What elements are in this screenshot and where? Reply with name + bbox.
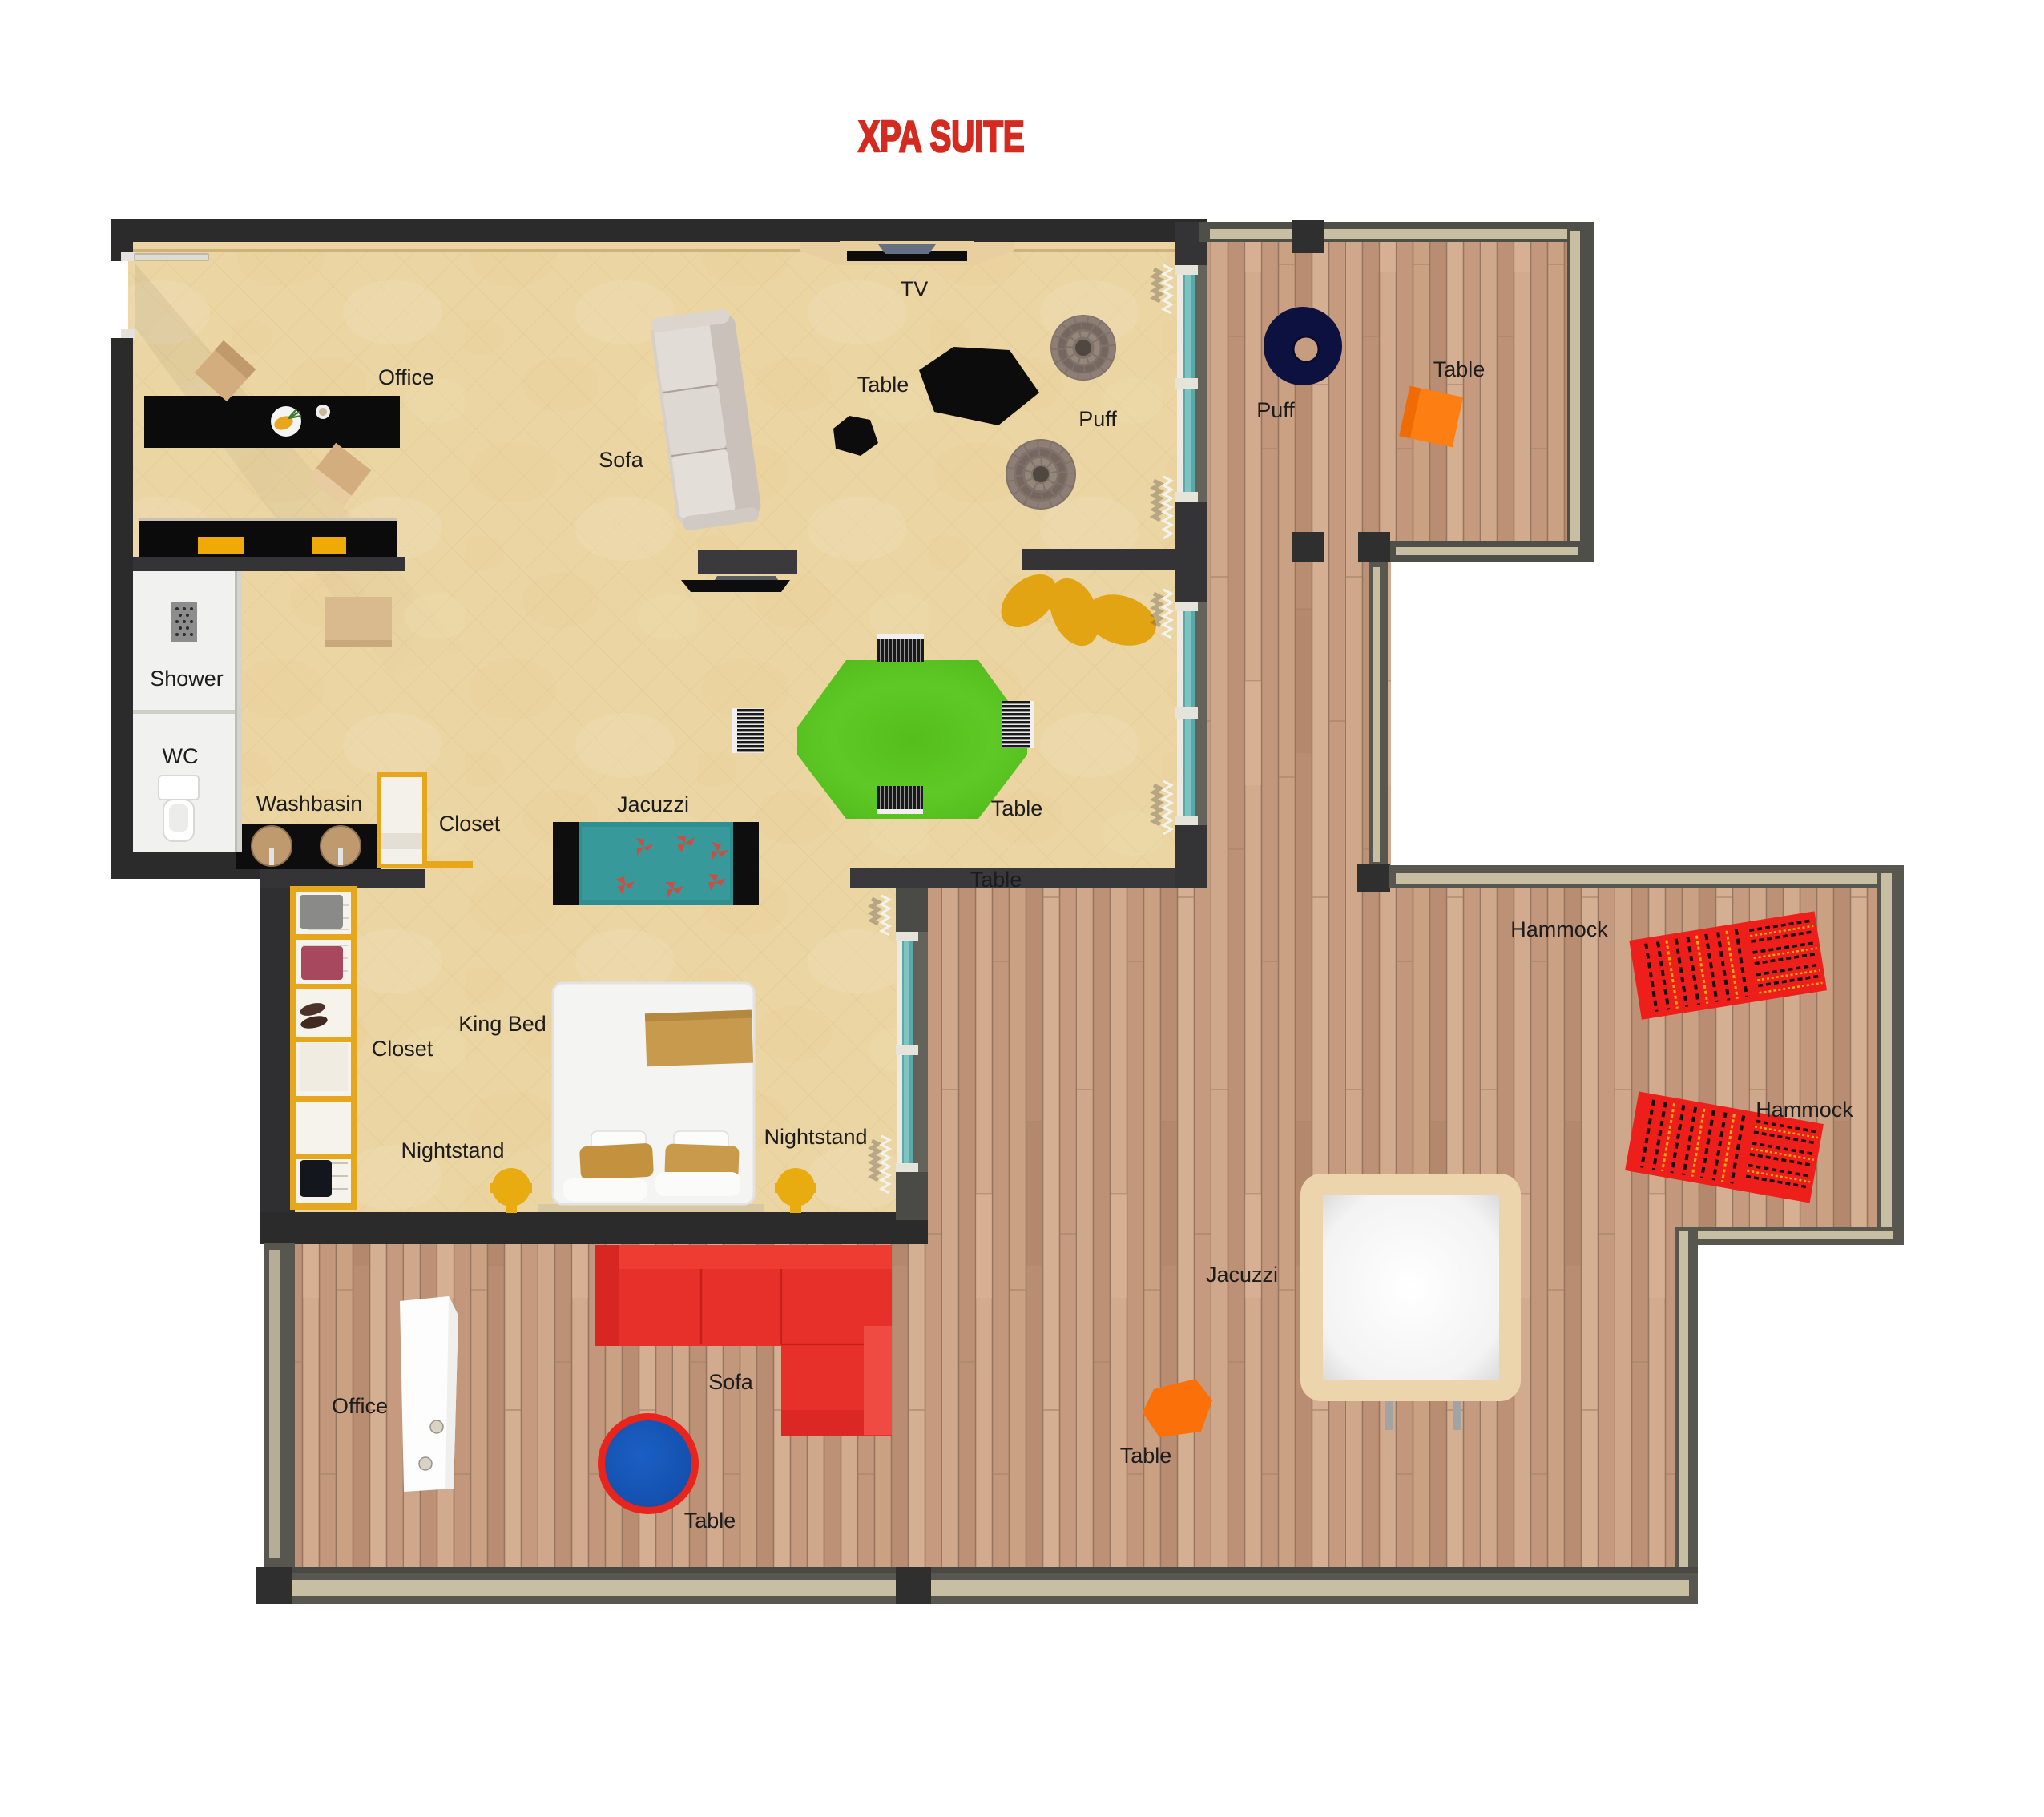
svg-text:Nightstand: Nightstand [401,1138,504,1162]
svg-text:Washbasin: Washbasin [256,792,363,816]
svg-text:Hammock: Hammock [1510,917,1608,941]
svg-text:Table: Table [1433,357,1486,381]
svg-text:Shower: Shower [150,667,224,691]
svg-text:Closet: Closet [372,1037,433,1061]
svg-text:Office: Office [378,365,434,389]
svg-text:Table: Table [684,1509,736,1533]
svg-text:Jacuzzi: Jacuzzi [1206,1263,1278,1287]
svg-text:TV: TV [901,277,929,301]
svg-text:WC: WC [163,744,199,768]
svg-text:Table: Table [857,373,909,397]
svg-text:Closet: Closet [439,812,501,836]
svg-text:XPA SUITE: XPA SUITE [858,112,1024,162]
svg-text:Sofa: Sofa [708,1370,754,1394]
svg-text:Puff: Puff [1256,398,1295,422]
svg-text:Jacuzzi: Jacuzzi [617,792,689,816]
svg-text:Table: Table [970,868,1022,892]
svg-text:Puff: Puff [1078,407,1117,431]
svg-text:Table: Table [991,796,1043,820]
svg-text:Office: Office [332,1394,388,1418]
svg-text:Sofa: Sofa [599,448,644,472]
svg-text:King Bed: King Bed [458,1012,546,1036]
svg-text:Hammock: Hammock [1756,1098,1853,1122]
svg-text:Table: Table [1120,1444,1172,1468]
svg-text:Nightstand: Nightstand [764,1125,867,1149]
